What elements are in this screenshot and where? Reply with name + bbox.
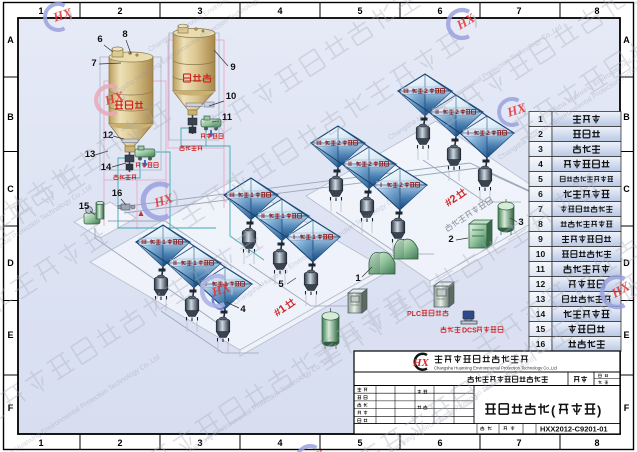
svg-text:B: B [623,112,630,122]
svg-text:13: 13 [536,294,546,304]
svg-text:11: 11 [536,264,545,274]
svg-text:9: 9 [230,62,235,73]
svg-text:10: 10 [536,249,546,259]
svg-text:6: 6 [538,189,543,199]
svg-text:1: 1 [38,438,43,448]
svg-text:D: D [7,258,14,268]
svg-text:8: 8 [122,29,127,40]
svg-text:8: 8 [594,6,599,16]
svg-text:III: III [403,88,409,95]
svg-text:3: 3 [538,144,543,154]
svg-text:7: 7 [516,438,521,448]
svg-text:8: 8 [594,438,599,448]
svg-text:B: B [7,112,14,122]
svg-text:2: 2 [455,109,459,116]
svg-text:12: 12 [536,279,546,289]
svg-text:E: E [623,330,629,340]
svg-text:Changsha Huanxing Environmenta: Changsha Huanxing Environmental Protecti… [434,366,558,371]
svg-text:II: II [348,161,352,168]
svg-text:16: 16 [112,188,123,199]
svg-text:2: 2 [486,130,490,137]
svg-text:2: 2 [424,88,428,95]
svg-text:1: 1 [38,6,43,16]
svg-text:2: 2 [448,234,453,245]
svg-text:A: A [623,35,630,45]
svg-text:5: 5 [357,6,362,16]
svg-text:2: 2 [399,182,403,189]
svg-text:10: 10 [226,91,237,102]
svg-text:II: II [261,213,265,220]
svg-text:1: 1 [281,213,285,220]
svg-text:6: 6 [437,438,442,448]
svg-text:9: 9 [538,234,543,244]
svg-text:2: 2 [117,6,122,16]
svg-text:14: 14 [101,162,112,173]
svg-text:4: 4 [538,159,543,169]
svg-text:C: C [7,184,14,194]
svg-text:III: III [141,239,147,246]
svg-text:I: I [380,182,382,189]
svg-text:HXX2012-C9201-01: HXX2012-C9201-01 [540,425,608,434]
svg-text:1: 1 [355,273,361,284]
svg-text:I: I [467,130,469,137]
svg-text:DCS: DCS [462,328,477,335]
svg-text:I: I [293,234,295,241]
svg-text:III: III [316,140,322,147]
svg-text:III: III [229,192,235,199]
svg-text:15: 15 [536,324,546,334]
svg-text:C: C [623,184,630,194]
svg-text:2: 2 [368,161,372,168]
svg-text:7: 7 [91,58,96,69]
svg-text:): ) [597,403,601,418]
svg-text:1: 1 [250,192,254,199]
svg-text:5: 5 [538,174,543,184]
svg-text:4: 4 [277,438,282,448]
svg-text:5: 5 [278,279,284,290]
svg-text:II: II [173,260,177,267]
svg-text:2: 2 [337,140,341,147]
svg-text:E: E [7,330,13,340]
svg-text:15: 15 [79,201,90,212]
svg-text:4: 4 [240,304,246,315]
svg-text:1: 1 [312,234,316,241]
svg-text:7: 7 [516,6,521,16]
svg-text:5: 5 [357,438,362,448]
svg-text:HX: HX [412,357,430,369]
svg-text:1: 1 [162,239,166,246]
svg-text:4: 4 [277,6,282,16]
svg-text:(: ( [551,403,556,418]
svg-text:F: F [624,403,630,413]
svg-text:6: 6 [97,34,102,45]
svg-text:A: A [7,35,14,45]
svg-text:6: 6 [437,6,442,16]
svg-text:2: 2 [117,438,122,448]
